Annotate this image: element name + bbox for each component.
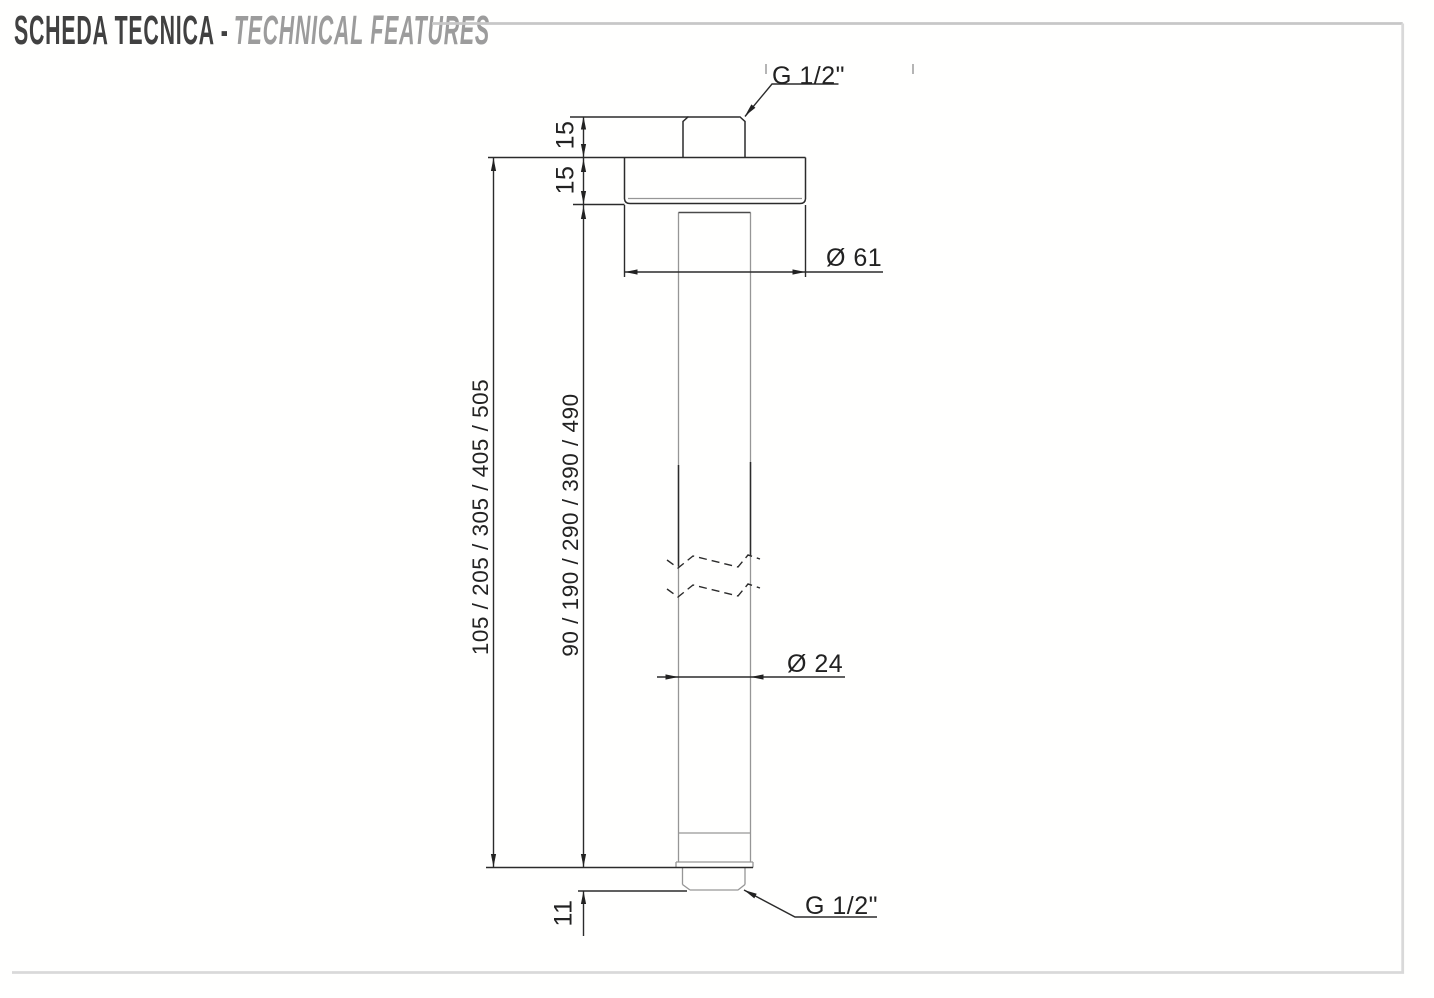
thread-top-label: G 1/2" [772,62,845,91]
arrow-down-total-bottom [491,854,496,867]
shower-arm-outline-dark [486,117,806,892]
technical-sheet-page: SCHEDA TECNICA -TECHNICAL FEATURES [0,0,1434,998]
arrow-right-flange-dia [793,269,806,274]
break-lines [667,555,760,597]
shower-arm-outline-gray [628,199,802,891]
pipe-diameter-label: Ø 24 [787,650,843,679]
bottom-thread-tip [683,885,746,891]
page-frame [12,24,1403,973]
flange-height-label: 15 [552,166,581,195]
total-lengths-label: 105 / 205 / 305 / 405 / 505 [468,379,494,655]
break-line-lower [667,584,760,597]
thread-bottom-label: G 1/2" [805,892,878,921]
arrow-pipe-dia-left [666,674,679,679]
arrow-pipe-dia-right [751,674,764,679]
arrow-up-flange-top2 [581,159,586,172]
arrow-up-arm-start [581,206,586,219]
bottom-thread-sides [683,868,746,885]
arrow-down-arm-bottom [581,854,586,867]
break-line-upper [667,555,760,568]
arrow-left-flange-dia [625,269,638,274]
flange-diameter-label: Ø 61 [826,244,882,273]
nipple-left-edge [683,117,689,158]
technical-drawing [0,0,1434,998]
flange-dia-extension-lines [625,205,806,277]
flange-bottom-face [625,199,806,204]
nipple-height-label: 15 [552,121,581,150]
dimension-arrowheads [491,104,806,904]
bottom-thread-length-label: 11 [550,900,579,927]
arrow-leader-bottom [744,890,757,898]
arm-lengths-label: 90 / 190 / 290 / 390 / 490 [558,393,584,656]
arrow-up-thread-end [581,891,586,904]
nipple-right-edge [740,117,746,158]
end-collar [676,862,753,868]
arrow-down-flange-bottom [581,191,586,204]
arrow-up-nipple-top [581,117,586,130]
arrow-up-total-top [491,158,496,171]
arrow-down-flange-top [581,144,586,157]
